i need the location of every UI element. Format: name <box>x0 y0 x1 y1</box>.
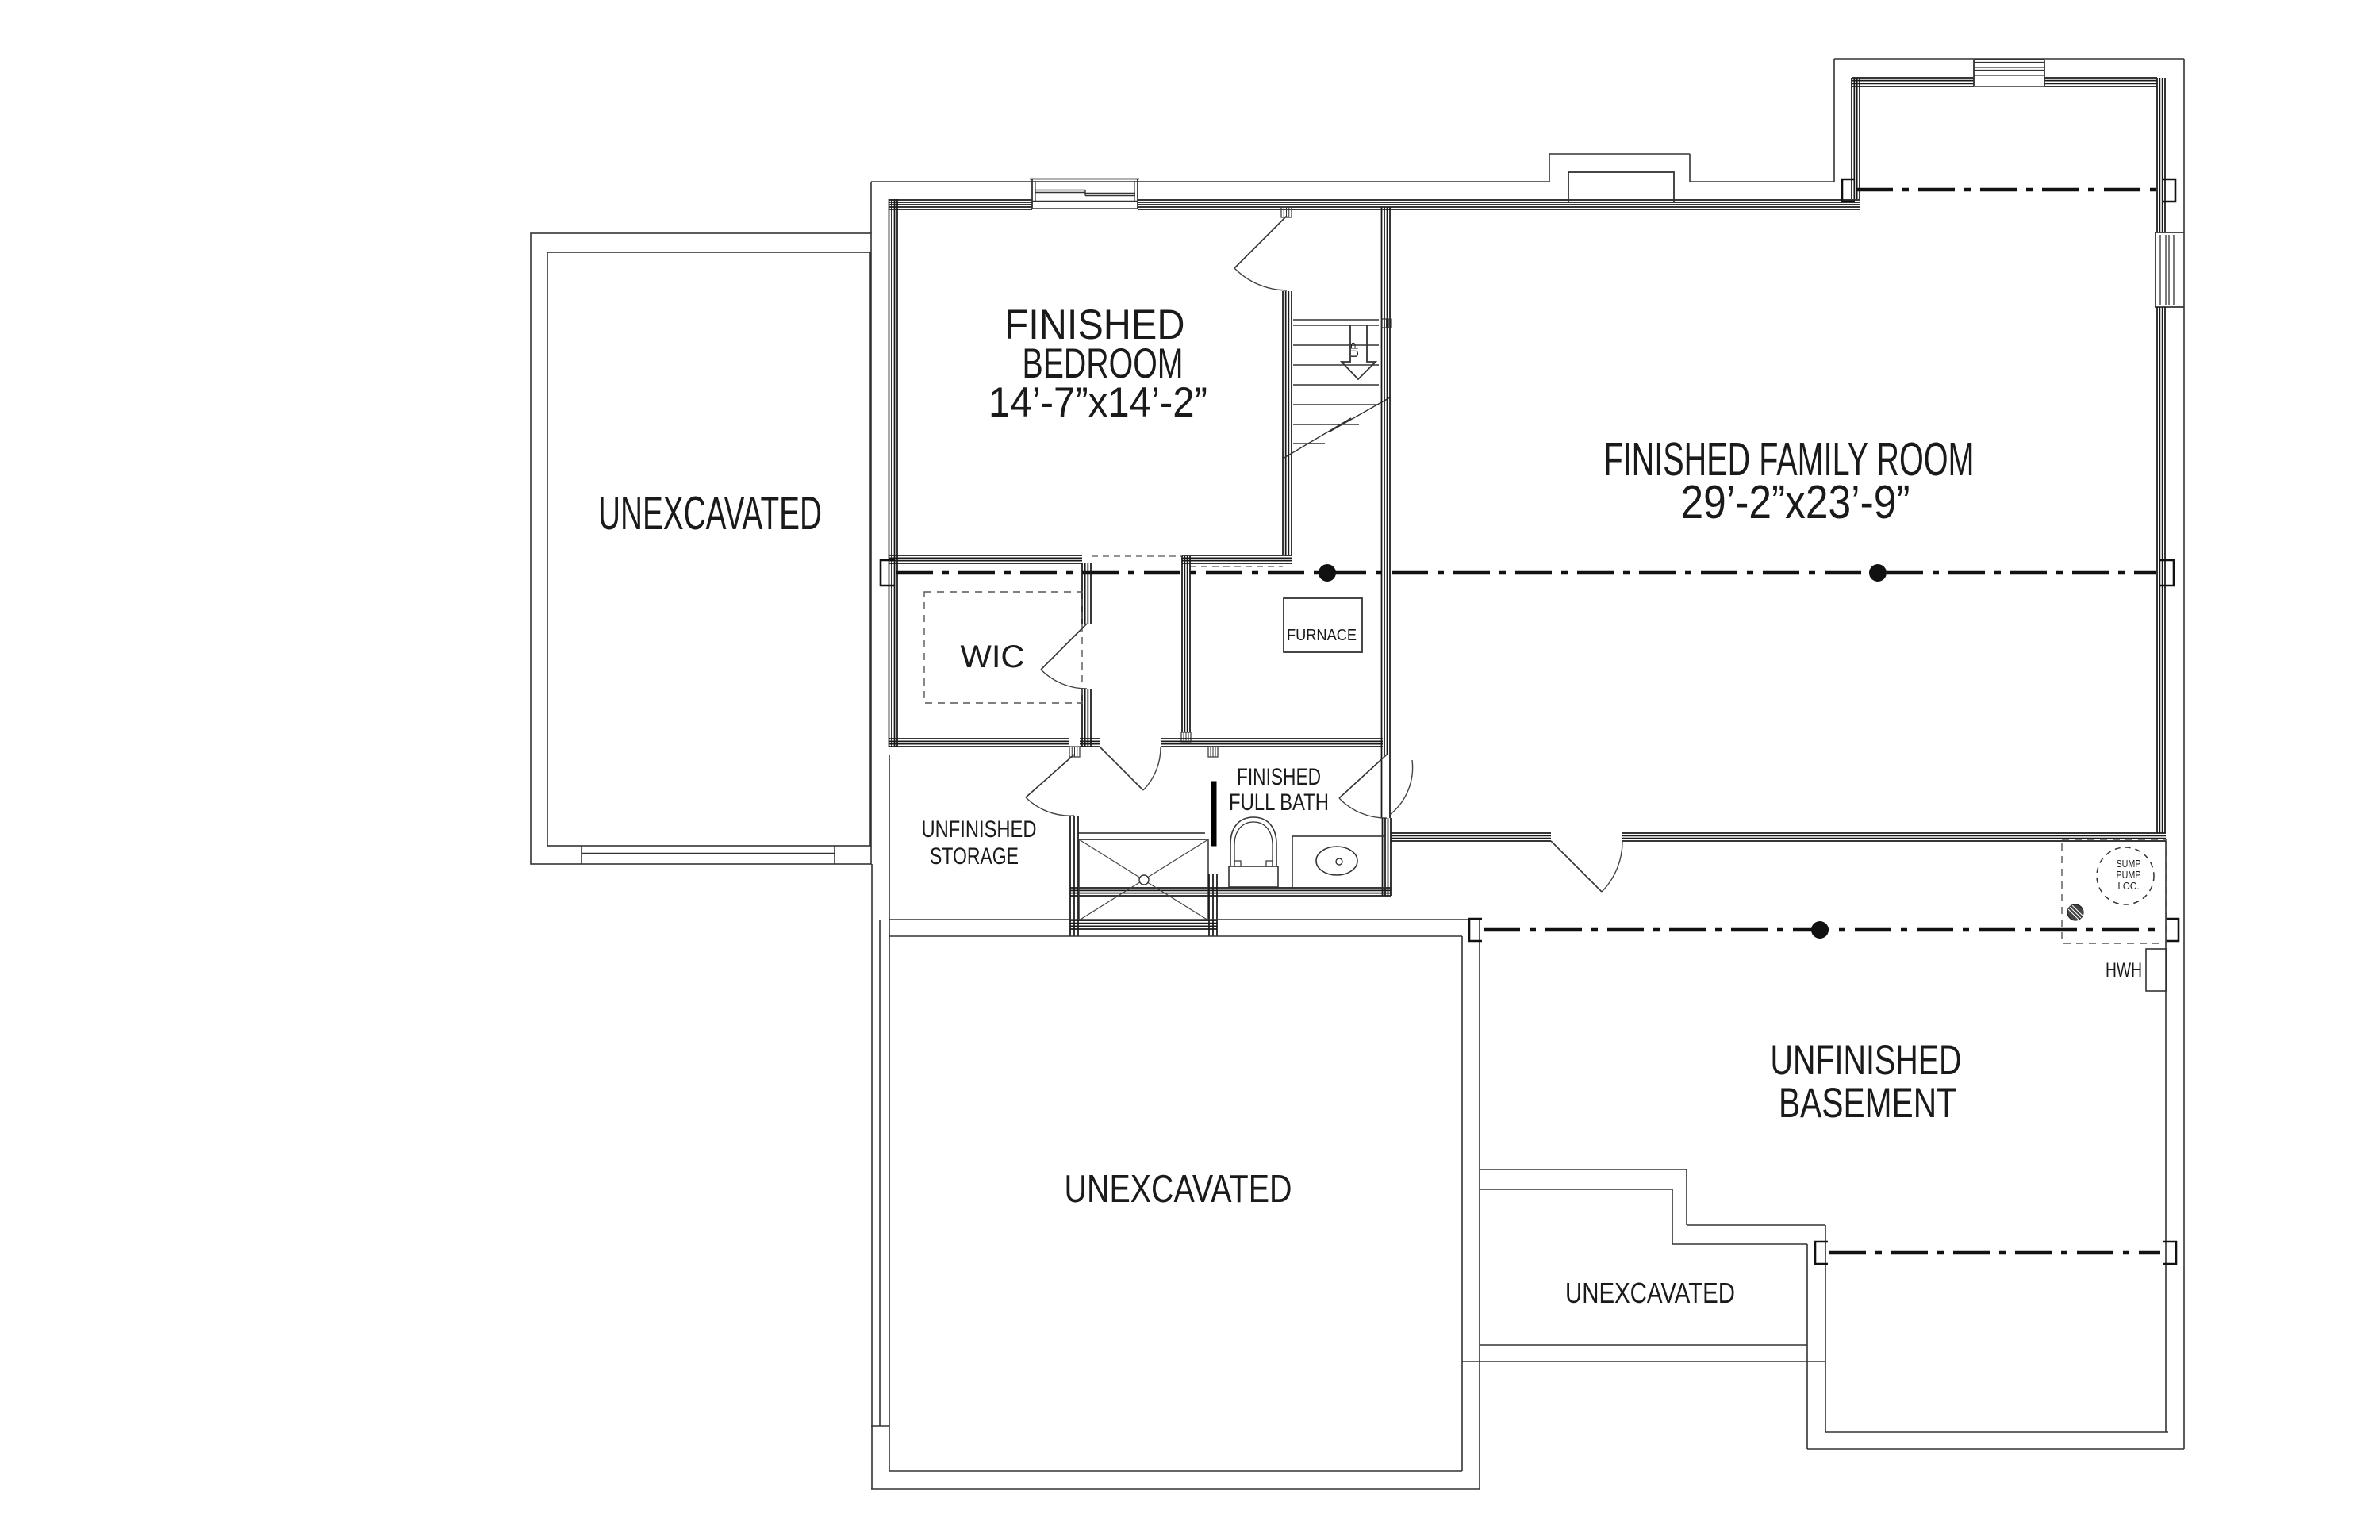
svg-text:PUMP: PUMP <box>2117 869 2141 881</box>
svg-text:BASEMENT: BASEMENT <box>1779 1080 1956 1127</box>
svg-text:UNEXCAVATED: UNEXCAVATED <box>598 487 822 540</box>
svg-text:UP: UP <box>1349 342 1361 358</box>
svg-text:UNFINISHED: UNFINISHED <box>922 816 1037 843</box>
svg-text:FULL BATH: FULL BATH <box>1229 789 1329 816</box>
svg-text:UNEXCAVATED: UNEXCAVATED <box>1565 1277 1735 1309</box>
svg-text:STORAGE: STORAGE <box>930 843 1019 870</box>
svg-text:UNFINISHED: UNFINISHED <box>1771 1037 1962 1084</box>
svg-text:14’-7”x14’-2”: 14’-7”x14’-2” <box>988 379 1207 426</box>
svg-text:LOC.: LOC. <box>2118 880 2140 892</box>
svg-text:HWH: HWH <box>2106 959 2142 981</box>
svg-text:FURNACE: FURNACE <box>1287 627 1357 644</box>
svg-text:FINISHED: FINISHED <box>1237 764 1321 790</box>
svg-text:29’-2”x23’-9”: 29’-2”x23’-9” <box>1681 476 1910 528</box>
svg-text:UNEXCAVATED: UNEXCAVATED <box>1065 1168 1292 1211</box>
svg-text:SUMP: SUMP <box>2117 858 2141 870</box>
svg-text:WIC: WIC <box>961 639 1025 674</box>
